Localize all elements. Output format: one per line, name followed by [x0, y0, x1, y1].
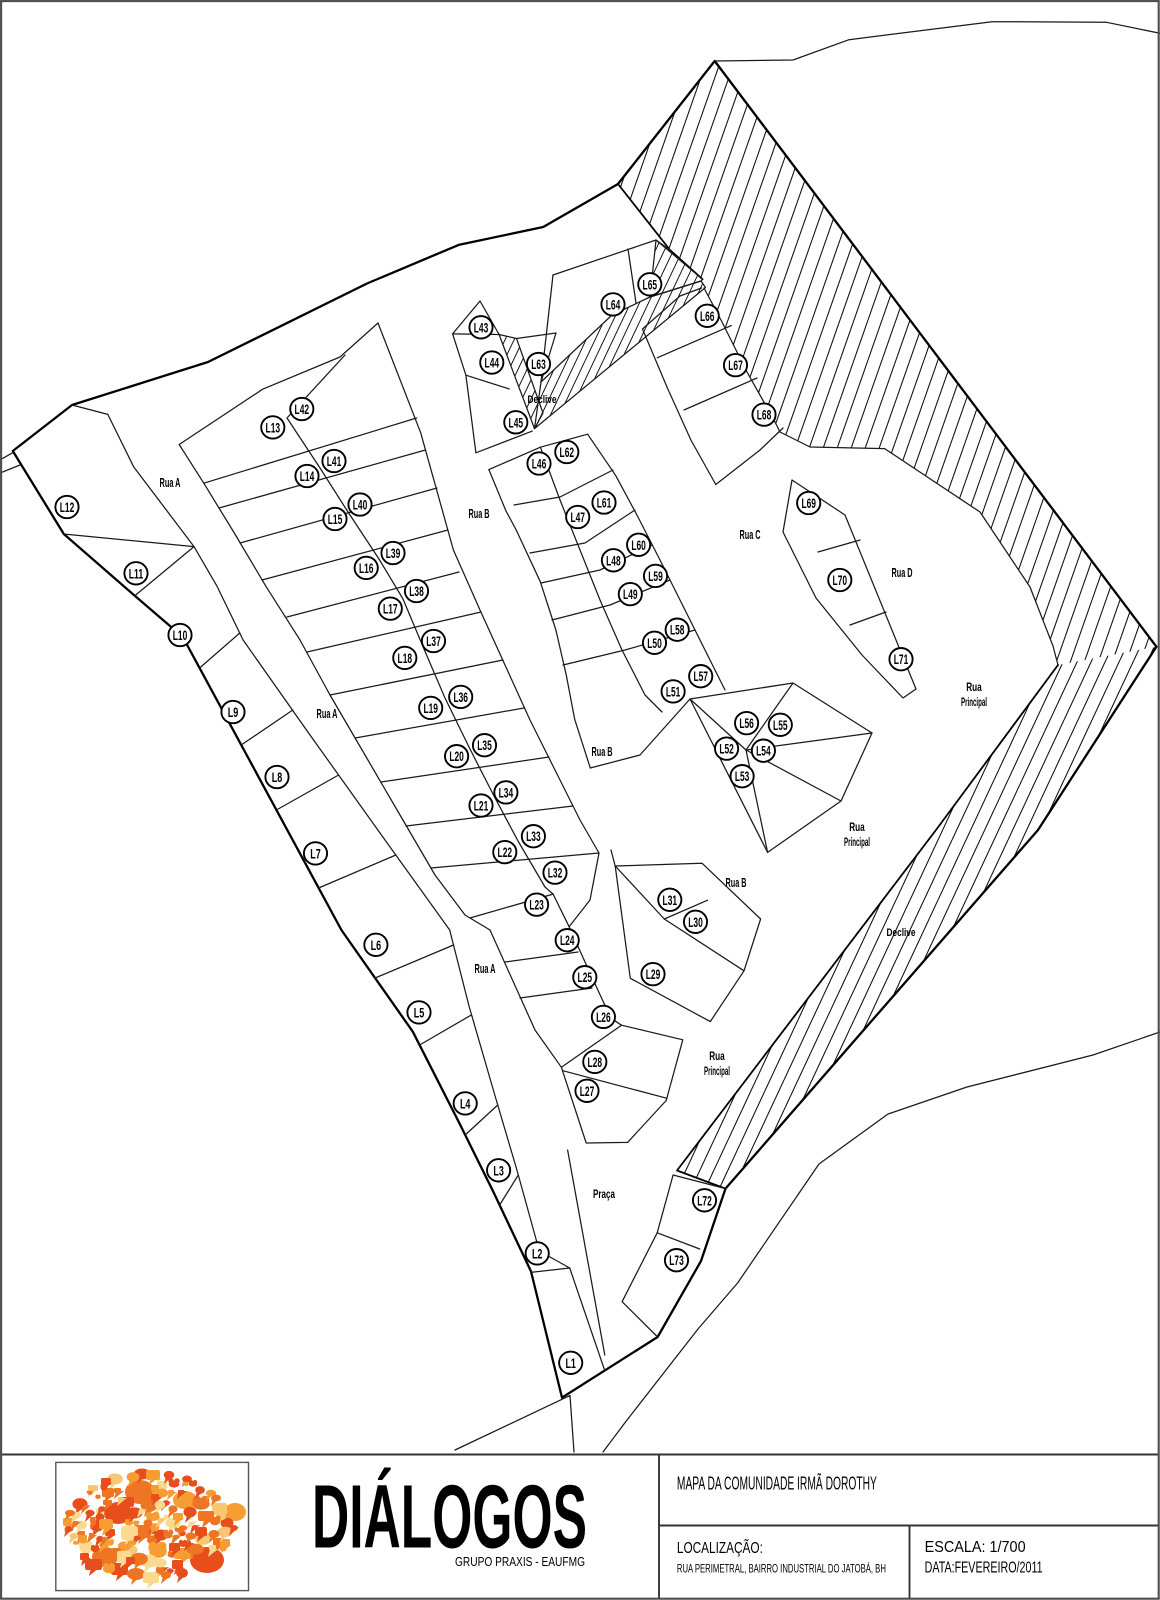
svg-text:L11: L11 — [129, 565, 144, 581]
svg-text:Declive: Declive — [528, 394, 557, 406]
svg-text:L42: L42 — [295, 401, 310, 417]
svg-text:L13: L13 — [266, 419, 281, 435]
svg-text:L39: L39 — [386, 545, 401, 561]
svg-text:L3: L3 — [493, 1162, 504, 1178]
svg-text:Praça: Praça — [593, 1188, 615, 1201]
svg-text:L30: L30 — [688, 914, 703, 930]
svg-text:L33: L33 — [526, 828, 541, 844]
svg-text:L52: L52 — [719, 741, 734, 757]
svg-text:L20: L20 — [449, 748, 464, 764]
svg-text:L10: L10 — [173, 627, 188, 643]
svg-text:L44: L44 — [485, 355, 500, 371]
svg-text:MAPA DA COMUNIDADE IRMÃ DOROTH: MAPA DA COMUNIDADE IRMÃ DOROTHY — [677, 1473, 877, 1494]
svg-text:L48: L48 — [606, 552, 621, 568]
svg-text:L40: L40 — [353, 497, 368, 513]
svg-text:L73: L73 — [669, 1252, 684, 1268]
svg-text:L66: L66 — [700, 308, 715, 324]
svg-text:L35: L35 — [477, 737, 492, 753]
svg-text:L62: L62 — [560, 444, 575, 460]
svg-text:L9: L9 — [228, 704, 239, 720]
svg-text:Principal: Principal — [844, 835, 870, 849]
svg-text:DIÁLOGOS: DIÁLOGOS — [312, 1467, 587, 1568]
svg-text:L24: L24 — [560, 932, 575, 948]
svg-text:L51: L51 — [666, 683, 681, 699]
svg-text:L5: L5 — [414, 1004, 425, 1020]
svg-text:L14: L14 — [300, 468, 315, 484]
svg-text:L61: L61 — [597, 495, 612, 511]
svg-text:L41: L41 — [327, 453, 342, 469]
svg-text:L43: L43 — [474, 319, 489, 335]
svg-text:L53: L53 — [735, 768, 750, 784]
svg-text:RUA PERIMETRAL, BAIRRO INDUSTR: RUA PERIMETRAL, BAIRRO INDUSTRIAL DO JAT… — [677, 1561, 886, 1576]
svg-text:Principal: Principal — [704, 1064, 730, 1078]
svg-text:Rua B: Rua B — [592, 744, 613, 759]
svg-text:L49: L49 — [623, 586, 638, 602]
svg-text:L63: L63 — [531, 356, 546, 372]
svg-text:Rua D: Rua D — [892, 565, 913, 580]
svg-text:L72: L72 — [697, 1192, 712, 1208]
svg-text:L18: L18 — [398, 650, 413, 666]
svg-text:L8: L8 — [272, 769, 283, 785]
svg-text:L12: L12 — [60, 499, 75, 515]
svg-text:Rua C: Rua C — [740, 527, 761, 542]
svg-text:Declive: Declive — [887, 927, 916, 939]
svg-text:L23: L23 — [529, 897, 544, 913]
svg-text:L15: L15 — [328, 511, 343, 527]
svg-text:L25: L25 — [578, 969, 593, 985]
svg-text:L32: L32 — [548, 865, 563, 881]
svg-text:L29: L29 — [646, 966, 661, 982]
svg-text:GRUPO PRAXIS - EAUFMG: GRUPO PRAXIS - EAUFMG — [455, 1554, 585, 1569]
svg-text:L55: L55 — [773, 717, 788, 733]
svg-text:ESCALA: 1/700: ESCALA: 1/700 — [925, 1539, 1026, 1556]
svg-text:L34: L34 — [499, 784, 514, 800]
svg-text:L60: L60 — [631, 537, 646, 553]
svg-text:L26: L26 — [596, 1009, 611, 1025]
svg-text:L45: L45 — [509, 414, 524, 430]
svg-text:Rua A: Rua A — [475, 961, 496, 976]
svg-text:L71: L71 — [894, 651, 909, 667]
svg-text:L17: L17 — [383, 601, 398, 617]
svg-text:L16: L16 — [359, 560, 374, 576]
svg-text:L46: L46 — [532, 456, 547, 472]
svg-text:DATA:FEVEREIRO/2011: DATA:FEVEREIRO/2011 — [925, 1560, 1043, 1577]
svg-text:L38: L38 — [409, 583, 424, 599]
svg-text:Rua: Rua — [709, 1049, 725, 1063]
svg-text:L4: L4 — [460, 1095, 471, 1111]
svg-text:Rua B: Rua B — [469, 506, 490, 521]
svg-text:L67: L67 — [728, 357, 743, 373]
svg-text:L65: L65 — [643, 276, 658, 292]
svg-text:L64: L64 — [606, 296, 621, 312]
svg-text:L68: L68 — [757, 407, 772, 423]
svg-text:Principal: Principal — [961, 695, 987, 709]
svg-text:L70: L70 — [833, 572, 848, 588]
svg-text:Rua A: Rua A — [160, 475, 181, 490]
svg-text:L59: L59 — [648, 568, 663, 584]
svg-text:L7: L7 — [310, 845, 321, 861]
svg-text:L1: L1 — [565, 1355, 576, 1371]
svg-text:L36: L36 — [453, 689, 468, 705]
svg-text:L21: L21 — [474, 798, 489, 814]
svg-text:L27: L27 — [580, 1083, 595, 1099]
svg-text:L2: L2 — [532, 1245, 543, 1261]
svg-text:L57: L57 — [693, 668, 708, 684]
svg-text:L28: L28 — [588, 1054, 603, 1070]
svg-text:L6: L6 — [371, 937, 382, 953]
svg-text:L58: L58 — [670, 622, 685, 638]
svg-text:LOCALIZAÇÃO:: LOCALIZAÇÃO: — [677, 1537, 763, 1557]
svg-text:L69: L69 — [801, 495, 816, 511]
svg-text:Rua A: Rua A — [317, 706, 338, 721]
svg-text:L22: L22 — [498, 844, 513, 860]
svg-text:Rua: Rua — [966, 680, 982, 694]
svg-text:L50: L50 — [647, 635, 662, 651]
svg-text:L37: L37 — [426, 633, 441, 649]
svg-text:Rua: Rua — [849, 820, 865, 834]
svg-text:L47: L47 — [570, 509, 585, 525]
svg-text:L31: L31 — [663, 892, 678, 908]
svg-text:L54: L54 — [756, 743, 771, 759]
svg-text:Rua B: Rua B — [726, 875, 747, 890]
svg-text:L56: L56 — [739, 715, 754, 731]
svg-text:L19: L19 — [423, 700, 438, 716]
